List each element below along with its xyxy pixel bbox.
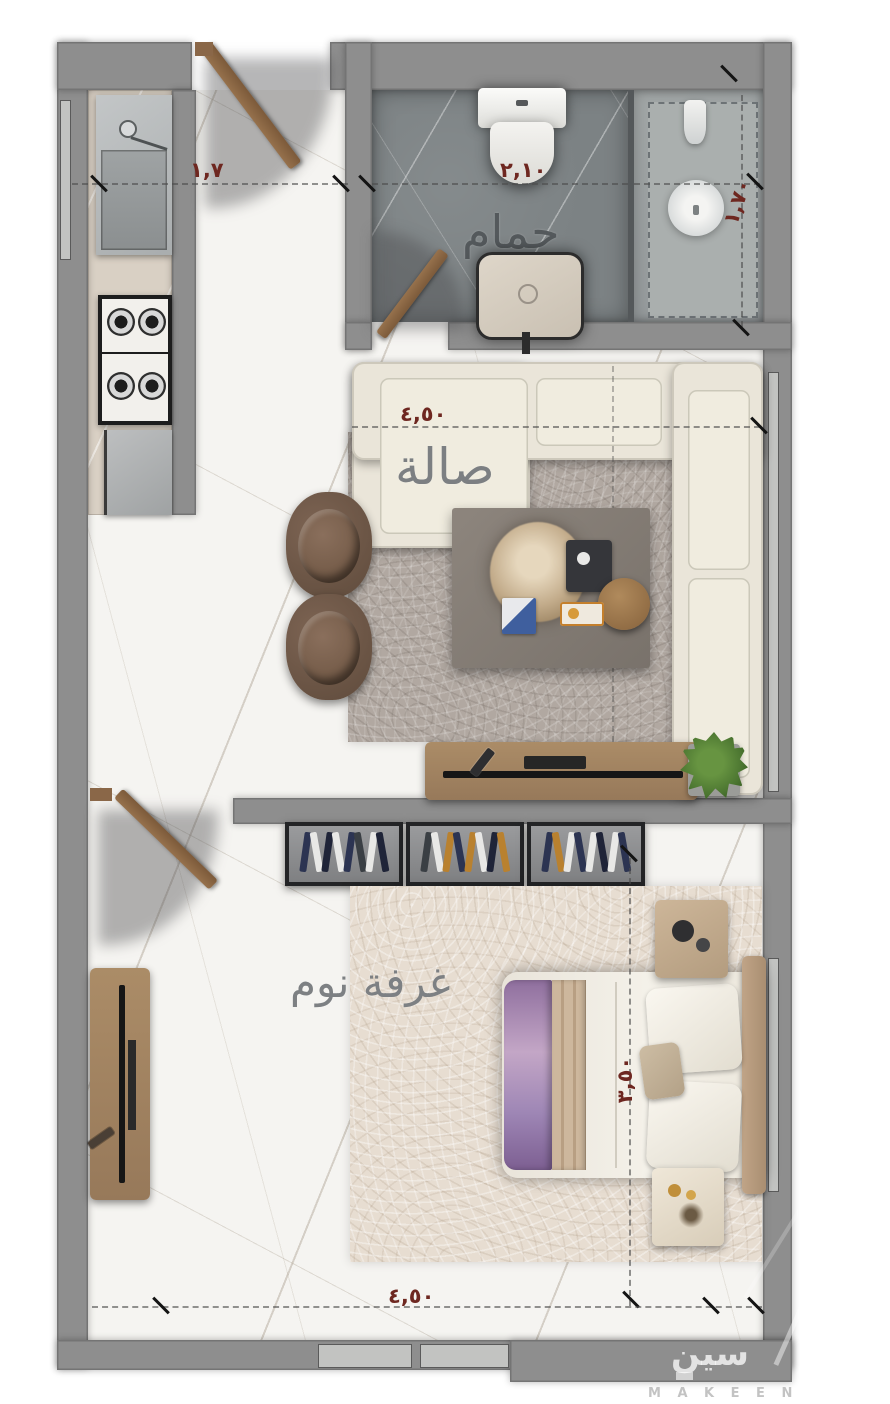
bedroom-tv-mount [128, 1040, 136, 1130]
bed-headboard [742, 956, 766, 1194]
window-bottom-2 [420, 1344, 509, 1368]
soundbar [524, 756, 586, 769]
dim-bedroom-depth: ٣,٥٠ [613, 1057, 637, 1103]
nightstand-decor-gold [686, 1190, 696, 1200]
watermark-latin: M A K E E N [648, 1386, 848, 1401]
shower-glass-divider [628, 90, 634, 322]
shower-hose-icon [684, 100, 706, 144]
dim-line-entry [72, 183, 348, 185]
dresser-decor [672, 920, 694, 942]
wall-bathroom-bottom-stub [345, 322, 372, 350]
watermark-underline [676, 1372, 693, 1380]
armchair [286, 492, 372, 598]
watermark-logo-line [804, 1276, 809, 1372]
wall-bedroom-divider [233, 798, 792, 824]
wardrobe-section [285, 822, 403, 886]
stove-burner [138, 308, 166, 336]
bedroom-door-frame [90, 788, 112, 801]
dim-bathroom-width: ٢,١٠ [500, 158, 546, 182]
shower-head-dot [693, 205, 699, 215]
dim-line-bathroom [372, 183, 628, 185]
dresser [655, 900, 728, 978]
living-room-label: صالة [395, 438, 495, 496]
bathroom-sink-drain [518, 284, 538, 304]
dim-entry-width: ١,٧ [190, 158, 224, 182]
wall-kitchen-right [172, 90, 196, 515]
bathroom-label: حمام [462, 205, 560, 259]
tray-cup [577, 552, 590, 565]
wardrobe-section [406, 822, 524, 886]
bedroom-label: غرفة نوم [290, 958, 450, 1007]
dresser-decor [696, 938, 710, 952]
watermark-arabic: سين [640, 1334, 780, 1372]
nightstand-decor-sprig [678, 1202, 704, 1228]
entry-door-frame [195, 42, 213, 56]
dim-bedroom-width: ٤,٥٠ [388, 1284, 434, 1308]
small-tray-dot [568, 608, 579, 619]
sofa-seat-cushion [536, 378, 662, 446]
table-book [502, 598, 536, 634]
dim-line-living [352, 426, 760, 428]
kitchen-sink-basin [101, 150, 167, 250]
stove-divider [101, 352, 169, 354]
stove-burner [107, 308, 135, 336]
bed-cushion-small [638, 1041, 685, 1100]
bed-throw-band [552, 980, 586, 1170]
floor-plan: حمام ١,٧ ٢,١٠ ١,٧٠ صالة ٤,٥٠ [0, 0, 890, 1404]
sofa-seat-cushion [688, 390, 750, 570]
kitchen-appliance [104, 430, 172, 515]
clothes-item [376, 832, 390, 873]
window-left-kitchen [60, 100, 71, 260]
bedroom-tv-screen [119, 985, 125, 1183]
window-bottom-1 [318, 1344, 412, 1368]
dim-living-width: ٤,٥٠ [400, 402, 446, 426]
window-right-living [768, 372, 779, 792]
nightstand-decor-gold [668, 1184, 681, 1197]
toilet-button [516, 100, 528, 106]
wall-top-left [57, 42, 192, 90]
round-stool [598, 578, 650, 630]
table-small-tray [560, 602, 604, 626]
wall-bathroom-left [345, 42, 372, 350]
kitchen-faucet-icon [119, 120, 137, 138]
clothes-item [497, 832, 511, 873]
stove-burner [107, 372, 135, 400]
stove-burner [138, 372, 166, 400]
armchair-cushion [298, 509, 360, 583]
armchair [286, 594, 372, 700]
bathroom-sink-tap [522, 332, 530, 354]
window-right-bedroom [768, 958, 779, 1192]
bed-throw-purple [504, 980, 552, 1170]
armchair-cushion [298, 611, 360, 685]
